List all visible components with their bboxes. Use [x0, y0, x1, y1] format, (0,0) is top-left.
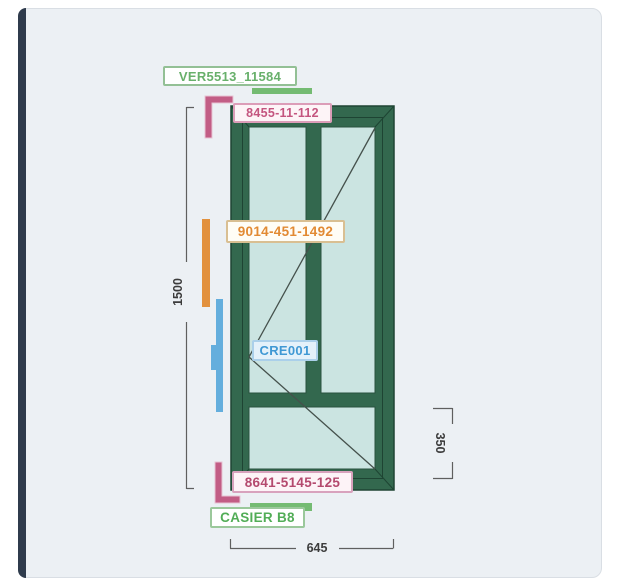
tag-casier-reference[interactable]: CASIER B8 — [210, 507, 305, 528]
dimension-total-width: 645 — [295, 540, 339, 556]
glass-pane-upper-right[interactable] — [321, 127, 375, 393]
highlight-bar-top-green[interactable] — [252, 88, 312, 94]
tag-bottom-profile[interactable]: 8641-5145-125 — [232, 471, 353, 493]
highlight-bar-left-orange[interactable] — [202, 219, 210, 307]
highlight-tab-left-blue[interactable] — [211, 345, 216, 370]
dimension-line-total-height — [187, 107, 195, 489]
tag-ver-reference[interactable]: VER5513_11584 — [163, 66, 297, 86]
dimension-bottom-section-height: 350 — [432, 421, 448, 465]
glass-pane-bottom[interactable] — [249, 407, 375, 469]
tag-cremone-hardware[interactable]: CRE001 — [252, 340, 318, 361]
dimension-total-height: 1500 — [170, 262, 186, 322]
tag-top-profile[interactable]: 8455-11-112 — [233, 103, 332, 123]
highlight-bar-left-blue[interactable] — [216, 299, 223, 412]
highlight-bracket-top-left-pink[interactable] — [205, 96, 233, 138]
tag-left-profile[interactable]: 9014-451-1492 — [226, 220, 345, 243]
window-drawing — [0, 0, 620, 587]
drawing-canvas: VER5513_11584 8455-11-112 9014-451-1492 … — [0, 0, 620, 587]
